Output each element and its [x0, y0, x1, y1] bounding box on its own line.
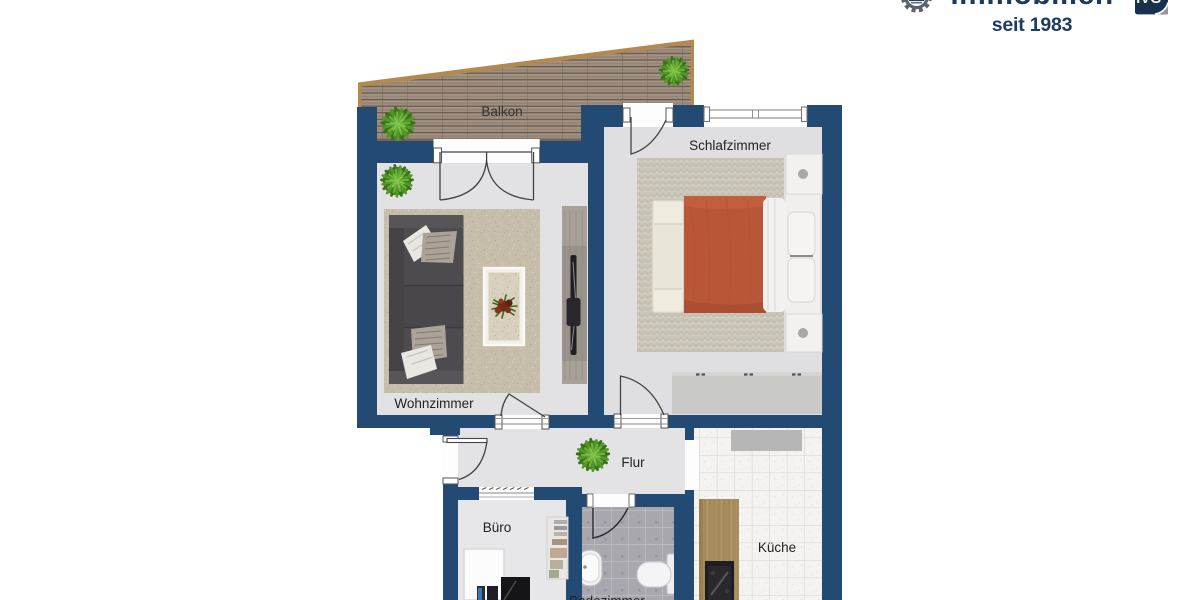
svg-text:seit 1983: seit 1983 — [992, 14, 1073, 36]
svg-text:Flur: Flur — [621, 455, 645, 470]
svg-text:Büro: Büro — [483, 520, 512, 535]
svg-text:IVG: IVG — [1136, 0, 1162, 6]
svg-text:Schlafzimmer: Schlafzimmer — [689, 138, 771, 153]
svg-text:Badezimmer: Badezimmer — [569, 594, 645, 600]
svg-text:Wohnzimmer: Wohnzimmer — [394, 396, 474, 411]
svg-text:Balkon: Balkon — [481, 104, 522, 119]
svg-text:immobilien: immobilien — [950, 0, 1113, 11]
svg-text:Küche: Küche — [758, 540, 796, 555]
